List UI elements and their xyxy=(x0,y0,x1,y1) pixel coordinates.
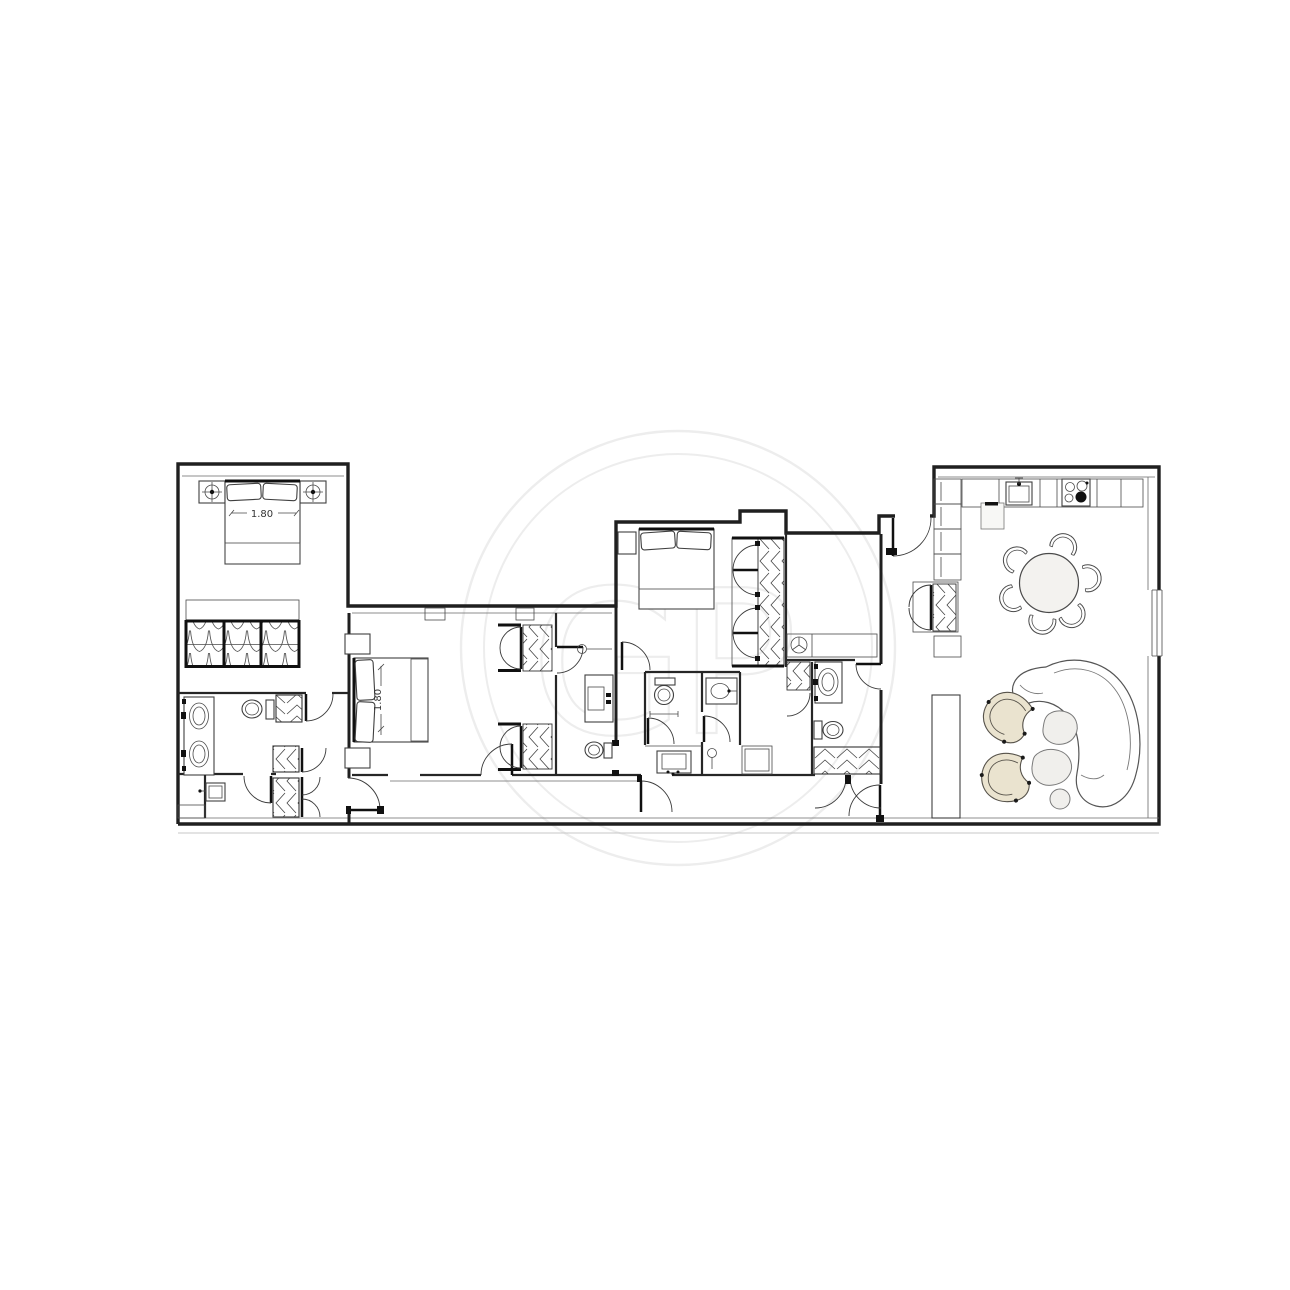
toilet xyxy=(814,721,843,739)
nightstand xyxy=(345,748,370,768)
coffee-tables xyxy=(1032,711,1077,809)
pillow xyxy=(227,483,262,501)
dining-chair xyxy=(1027,615,1057,637)
armchairs xyxy=(976,686,1037,809)
coffee-table xyxy=(1043,711,1077,744)
dining-chair xyxy=(1049,530,1080,556)
pouf xyxy=(1050,789,1070,809)
double-bed xyxy=(639,529,714,609)
nightstand-right xyxy=(300,481,326,503)
closet-bottom xyxy=(273,777,320,817)
vanity xyxy=(657,751,691,776)
master-wardrobe xyxy=(186,600,299,668)
window xyxy=(1150,590,1164,656)
dining-chair xyxy=(995,584,1021,616)
utility-room xyxy=(178,775,271,818)
door-corridor-left xyxy=(346,778,384,814)
door-bathroom3 xyxy=(856,664,881,689)
pillow xyxy=(263,483,298,501)
double-bed xyxy=(225,481,300,564)
floor-plan-drawing: GP xyxy=(0,0,1290,1290)
cooktop xyxy=(1062,479,1090,506)
wardrobe xyxy=(498,625,552,671)
double-bed xyxy=(354,658,428,742)
living-area xyxy=(976,660,1140,809)
shower-doors xyxy=(815,775,881,808)
radiator xyxy=(425,608,445,620)
sink-niche xyxy=(706,678,737,704)
entrance-door xyxy=(893,518,931,556)
door-utility xyxy=(244,776,271,803)
dimension-label: 1.80 xyxy=(373,689,384,711)
floor-plan-page: GP xyxy=(0,0,1290,1290)
pillow xyxy=(640,531,675,550)
pillow xyxy=(677,531,712,550)
coffee-table xyxy=(1032,749,1072,785)
vanity xyxy=(585,675,613,722)
entry xyxy=(893,518,961,818)
toilet xyxy=(585,742,612,758)
vanity xyxy=(813,662,842,703)
armchair xyxy=(976,748,1035,809)
shower xyxy=(276,695,302,722)
toilet xyxy=(655,678,676,705)
shower xyxy=(814,747,880,774)
partition-wall xyxy=(932,695,960,818)
door-arc xyxy=(787,693,810,716)
nightstand-left xyxy=(199,481,225,503)
radiator xyxy=(787,662,810,690)
dining-area xyxy=(995,530,1102,637)
wardrobe xyxy=(498,724,552,770)
dining-table xyxy=(1020,554,1079,613)
dining-chair xyxy=(1082,563,1102,592)
tall-cabinets xyxy=(934,479,961,580)
nightstand xyxy=(618,532,636,554)
toilet xyxy=(242,700,274,719)
entry-closet xyxy=(909,582,958,632)
master-bathroom xyxy=(178,694,333,818)
nightstand xyxy=(345,634,370,654)
door-hall xyxy=(849,785,884,822)
dimension-label: 1.80 xyxy=(251,509,273,520)
washing-machine-icon xyxy=(791,637,807,653)
double-vanity xyxy=(181,697,214,775)
master-bedroom: 1.80 xyxy=(186,481,326,668)
kitchen-cart xyxy=(981,502,1004,529)
closet-mid xyxy=(273,746,326,772)
utility-sink xyxy=(198,783,225,801)
door-master-bath xyxy=(306,694,333,721)
kitchen-sink xyxy=(1006,478,1032,505)
cabinet xyxy=(934,636,961,657)
